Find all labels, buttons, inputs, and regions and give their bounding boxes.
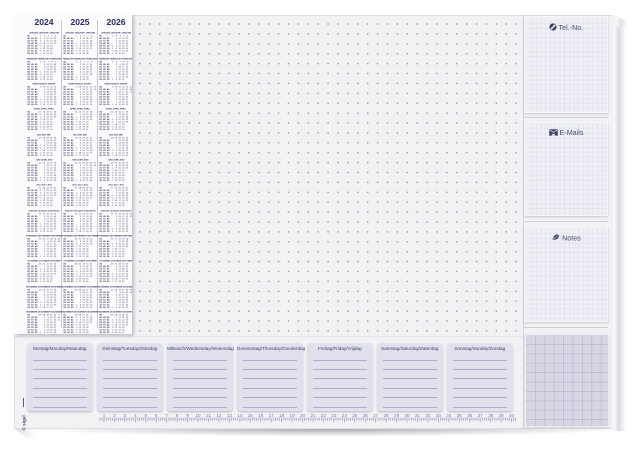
svg-text:1 8 15 22 29: 1 8 15 22 29 [110,103,132,106]
svg-text:SO SU ZO: SO SU ZO [99,103,110,106]
svg-text:SO SU ZO: SO SU ZO [27,128,38,131]
svg-text:SO SU ZO: SO SU ZO [63,331,74,334]
svg-text:7: 7 [165,413,168,418]
svg-text:8: 8 [176,413,179,418]
svg-text:1 8 15 22 29: 1 8 15 22 29 [38,331,60,334]
svg-text:16: 16 [258,413,264,418]
svg-text:25: 25 [352,413,358,418]
svg-text:26: 26 [363,413,369,418]
svg-text:SO SU ZO: SO SU ZO [27,230,38,233]
svg-text:2 9 16 23 30: 2 9 16 23 30 [74,306,93,309]
svg-text:2: 2 [113,413,116,418]
svg-text:31: 31 [415,413,421,418]
svg-text:SO SU ZO: SO SU ZO [27,179,38,182]
svg-text:1 8 15 22 29: 1 8 15 22 29 [110,306,132,309]
svg-text:SO SU ZO: SO SU ZO [63,154,74,157]
svg-text:SO SU ZO: SO SU ZO [27,280,38,283]
svg-text:11: 11 [206,413,211,418]
svg-text:38: 38 [488,413,494,418]
svg-text:18: 18 [279,413,285,418]
svg-text:6 13 20 27: 6 13 20 27 [110,255,129,258]
svg-text:SO SU ZO: SO SU ZO [99,128,110,131]
svg-text:5 12 19 26: 5 12 19 26 [38,154,57,157]
svg-text:6 13 20 27: 6 13 20 27 [74,128,93,131]
svg-text:SO SU ZO: SO SU ZO [63,306,74,309]
svg-text:33: 33 [436,413,442,418]
svg-text:SO SU ZO: SO SU ZO [99,154,110,157]
svg-text:10: 10 [195,413,201,418]
svg-text:15: 15 [248,413,254,418]
svg-text:SO SU ZO: SO SU ZO [63,128,74,131]
svg-text:SO SU ZO: SO SU ZO [99,255,110,258]
svg-text:SO SU ZO: SO SU ZO [63,204,74,207]
svg-text:SO SU ZO: SO SU ZO [63,78,74,81]
svg-text:4 11 18 25: 4 11 18 25 [38,230,57,233]
svg-text:SO SU ZO: SO SU ZO [63,255,74,258]
svg-text:19: 19 [290,413,296,418]
svg-text:SO SU ZO: SO SU ZO [63,52,74,55]
svg-text:1 8 15 22: 1 8 15 22 [110,78,129,81]
svg-text:2 9 16 23 30: 2 9 16 23 30 [110,230,132,233]
svg-text:35: 35 [457,413,463,418]
svg-text:24: 24 [342,413,348,418]
svg-text:SO SU ZO: SO SU ZO [63,179,74,182]
svg-text:23: 23 [331,413,337,418]
svg-text:40: 40 [509,413,515,418]
svg-text:2 9 16 23 30: 2 9 16 23 30 [74,103,96,106]
svg-text:2 9 16 23 30: 2 9 16 23 30 [38,179,57,182]
svg-text:6 13 20 27: 6 13 20 27 [38,280,57,283]
svg-text:36: 36 [467,413,473,418]
svg-text:22: 22 [321,413,327,418]
svg-text:7 14 21 28: 7 14 21 28 [38,52,57,55]
svg-text:6: 6 [155,413,158,418]
svg-text:39: 39 [499,413,505,418]
svg-text:7 14 21 28: 7 14 21 28 [74,331,93,334]
svg-text:27: 27 [373,413,379,418]
svg-text:20: 20 [300,413,306,418]
svg-text:SO SU ZO: SO SU ZO [99,52,110,55]
svg-text:2 9 16 23: 2 9 16 23 [74,78,93,81]
svg-text:37: 37 [478,413,484,418]
svg-text:SO SU ZO: SO SU ZO [99,306,110,309]
svg-text:5 12 19 26: 5 12 19 26 [110,128,129,131]
svg-text:5 12 19 26: 5 12 19 26 [74,52,93,55]
svg-text:7 14 21 28: 7 14 21 28 [110,179,129,182]
svg-text:SO SU ZO: SO SU ZO [27,52,38,55]
svg-text:7 14 21 28: 7 14 21 28 [38,204,57,207]
svg-text:5: 5 [145,413,148,418]
svg-text:34: 34 [446,413,452,418]
svg-text:SO SU ZO: SO SU ZO [27,103,38,106]
svg-text:3 10 17 24 31: 3 10 17 24 31 [74,230,93,233]
svg-text:7 14 21 28: 7 14 21 28 [74,255,93,258]
svg-text:17: 17 [269,413,275,418]
svg-text:SO SU ZO: SO SU ZO [99,179,110,182]
svg-text:4 11 18 25: 4 11 18 25 [38,78,57,81]
svg-text:7 14 21 28: 7 14 21 28 [38,128,57,131]
svg-text:SO SU ZO: SO SU ZO [27,154,38,157]
svg-text:5 12 19 26: 5 12 19 26 [74,280,93,283]
svg-text:5 12 19 26: 5 12 19 26 [110,204,129,207]
svg-text:SO SU ZO: SO SU ZO [63,103,74,106]
svg-text:3 10 17 24: 3 10 17 24 [38,306,57,309]
svg-text:9: 9 [186,413,189,418]
svg-text:32: 32 [425,413,431,418]
svg-text:SO SU ZO: SO SU ZO [27,331,38,334]
svg-text:1 8 15 22 29: 1 8 15 22 29 [74,179,96,182]
svg-text:SO SU ZO: SO SU ZO [27,204,38,207]
svg-text:SO SU ZO: SO SU ZO [63,280,74,283]
svg-text:3: 3 [124,413,127,418]
svg-text:SO SU ZO: SO SU ZO [27,306,38,309]
svg-text:1: 1 [103,413,106,418]
svg-text:3 10 17 24 31: 3 10 17 24 31 [110,154,129,157]
svg-text:30: 30 [404,413,410,418]
svg-text:21: 21 [310,413,316,418]
svg-text:SO SU ZO: SO SU ZO [99,331,110,334]
svg-text:28: 28 [384,413,390,418]
svg-text:4 11 18 25: 4 11 18 25 [110,280,129,283]
svg-text:14: 14 [237,413,243,418]
svg-text:SO SU ZO: SO SU ZO [63,230,74,233]
svg-text:3 10 17 24 31: 3 10 17 24 31 [38,103,57,106]
svg-text:SO SU ZO: SO SU ZO [27,78,38,81]
svg-text:SO SU ZO: SO SU ZO [27,255,38,258]
svg-text:SO SU ZO: SO SU ZO [99,78,110,81]
svg-text:SO SU ZO: SO SU ZO [99,230,110,233]
svg-text:13: 13 [227,413,233,418]
svg-text:1 8 15 22 29: 1 8 15 22 29 [38,255,60,258]
svg-text:29: 29 [394,413,400,418]
svg-text:4 11 18 25: 4 11 18 25 [74,154,93,157]
svg-text:12: 12 [216,413,222,418]
svg-text:4: 4 [134,413,137,418]
svg-text:SO SU ZO: SO SU ZO [99,204,110,207]
svg-text:SO SU ZO: SO SU ZO [99,280,110,283]
svg-text:6 13 20 27: 6 13 20 27 [74,204,93,207]
svg-text:6 13 20 27: 6 13 20 27 [110,331,129,334]
svg-text:4 11 18 25: 4 11 18 25 [110,52,129,55]
